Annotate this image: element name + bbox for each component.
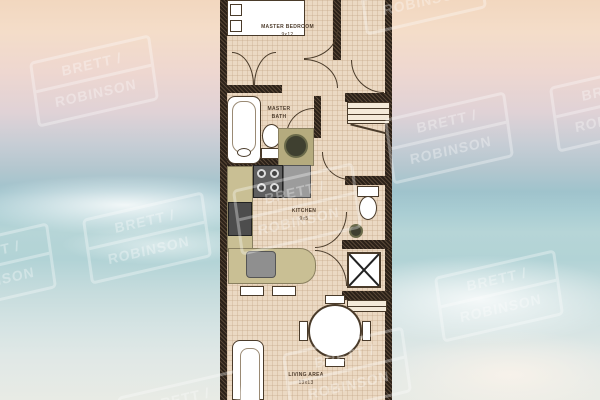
barstool (240, 286, 264, 296)
guest-toilet-bowl (359, 196, 377, 220)
room-name: MASTER BATH (268, 106, 291, 120)
burner (270, 169, 279, 178)
dining-chair (325, 295, 345, 304)
wall-left (220, 0, 227, 400)
wall-bath-hall (314, 96, 321, 138)
wall-hall-closet (345, 93, 392, 102)
sofa-cushions (240, 348, 260, 400)
wall-utility-bottom (342, 291, 392, 300)
wall-bedroom-bath (227, 85, 282, 93)
hall-closet-shelves (347, 102, 390, 124)
x-mark (349, 254, 379, 286)
pillow (230, 4, 242, 16)
dining-chair (299, 321, 308, 341)
pillow (230, 20, 242, 32)
utility-closet (347, 252, 381, 288)
bathtub-inner (232, 101, 256, 153)
kitchen-sink (284, 134, 308, 158)
wall-utility-top (342, 240, 392, 249)
floorplan-listing-image: MASTER BEDROOM 9x12 MASTER BATH KITCHEN (0, 0, 600, 400)
bar-sink (246, 251, 276, 278)
barstool (272, 286, 296, 296)
room-dims: 9x12 (281, 32, 293, 38)
burner (257, 169, 266, 178)
tub-faucet (237, 148, 251, 157)
